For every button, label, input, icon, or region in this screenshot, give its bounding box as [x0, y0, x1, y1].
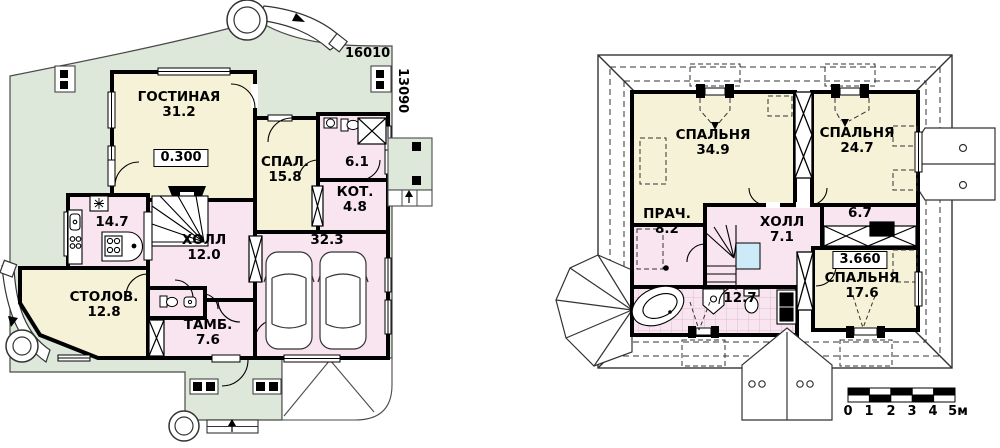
room-label-dining: СТОЛОВ.12.8 [70, 290, 139, 320]
plans-drawing [0, 0, 1000, 448]
scale-bar-graphic [848, 388, 955, 402]
scale-label: 0 [843, 404, 852, 419]
room-label-boiler: КОТ.4.8 [337, 185, 374, 215]
dimension-height: 13090 [395, 68, 410, 113]
room-label-laundry: ПРАЧ.8.2 [643, 207, 691, 237]
room-label-wardrobe: 6.7 [848, 206, 872, 221]
room-label-bath2: 12.7 [723, 291, 756, 306]
room-label-bedroom2a: СПАЛЬНЯ34.9 [676, 128, 751, 158]
bay-roof-icon [556, 255, 632, 366]
room-label-garage: 32.3 [310, 233, 343, 248]
room-label-bath61: 6.1 [345, 155, 369, 170]
side-porch [388, 138, 432, 206]
room-label-living: ГОСТИНАЯ31.2 [138, 90, 221, 120]
room-label-bedroom2b: СПАЛЬНЯ24.7 [820, 126, 895, 156]
scale-label: 3 [907, 404, 916, 419]
room-label-bedroom1f: СПАЛ.15.8 [261, 155, 309, 185]
driveway [282, 358, 392, 420]
dimension-width: 16010 [345, 46, 390, 61]
floor1-plan [0, 0, 432, 441]
room-label-kitchen: 14.7 [95, 215, 128, 230]
scale-label: 2 [886, 404, 895, 419]
car-icon [318, 252, 368, 349]
elevation-mark-floor2: 3.660 [832, 251, 887, 269]
room-label-bedroom2c: СПАЛЬНЯ17.6 [825, 271, 900, 301]
scale-label: 1 [864, 404, 873, 419]
scale-label: 5м [948, 404, 968, 419]
wardrobe-closets [824, 222, 916, 246]
scale-label: 4 [928, 404, 937, 419]
floor-plans-canvas: ГОСТИНАЯ31.2 0.300 СПАЛ.15.8 6.1 КОТ.4.8… [0, 0, 1000, 448]
elevation-mark-floor1: 0.300 [153, 149, 208, 167]
car-icon [264, 252, 314, 349]
room-label-tambour: ТАМБ.7.6 [184, 318, 233, 348]
room-label-hall2: ХОЛЛ7.1 [760, 215, 804, 245]
room-label-hall1: ХОЛЛ12.0 [182, 233, 226, 263]
